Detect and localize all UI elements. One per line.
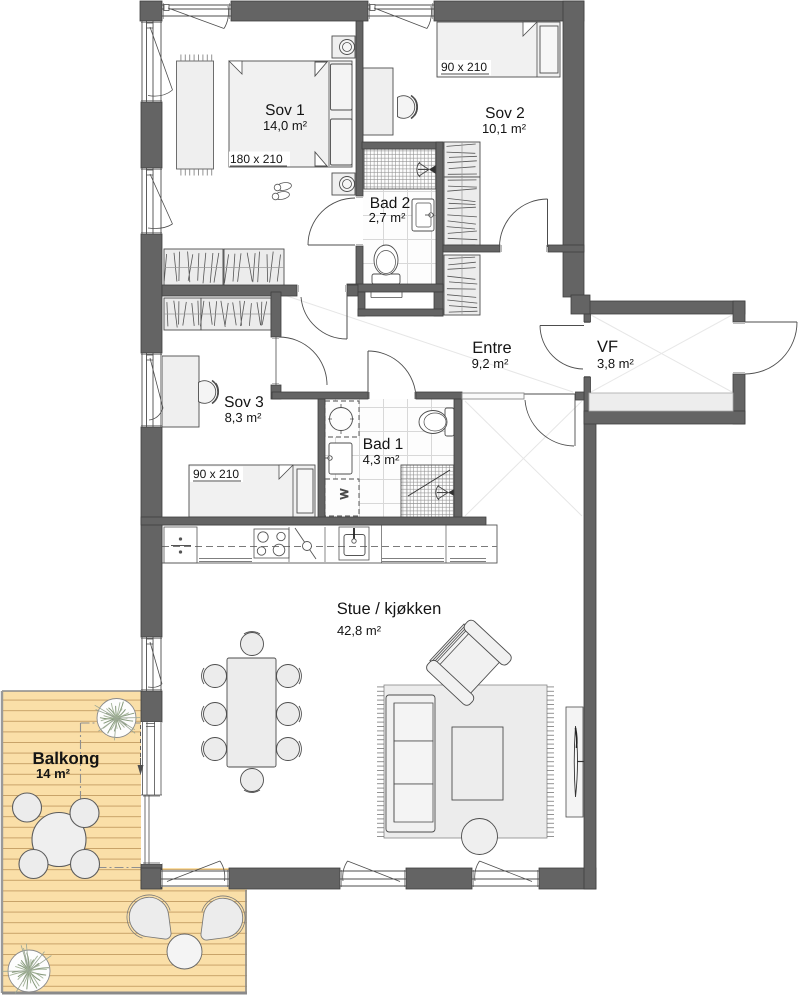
svg-text:10,1 m²: 10,1 m² <box>482 121 527 136</box>
svg-text:Stue / kjøkken: Stue / kjøkken <box>337 600 442 618</box>
svg-text:90 x 210: 90 x 210 <box>193 467 239 481</box>
svg-text:2,7 m²: 2,7 m² <box>369 210 407 225</box>
svg-text:W: W <box>339 488 351 499</box>
svg-text:3,8 m²: 3,8 m² <box>597 356 635 371</box>
svg-text:VF: VF <box>597 338 618 356</box>
svg-text:9,2 m²: 9,2 m² <box>472 356 510 371</box>
svg-text:90 x 210: 90 x 210 <box>441 60 487 74</box>
svg-text:Sov 2: Sov 2 <box>485 105 525 122</box>
svg-text:Sov 1: Sov 1 <box>265 102 305 119</box>
svg-text:42,8 m²: 42,8 m² <box>337 623 382 638</box>
svg-text:4,3 m²: 4,3 m² <box>363 452 401 467</box>
svg-text:180 x 210: 180 x 210 <box>230 152 283 166</box>
svg-text:Sov 3: Sov 3 <box>224 394 264 411</box>
svg-text:8,3 m²: 8,3 m² <box>225 410 263 425</box>
svg-text:Bad 1: Bad 1 <box>363 436 404 453</box>
svg-text:14,0 m²: 14,0 m² <box>263 118 308 133</box>
svg-text:Entre: Entre <box>472 339 511 357</box>
svg-text:14 m²: 14 m² <box>36 766 71 781</box>
